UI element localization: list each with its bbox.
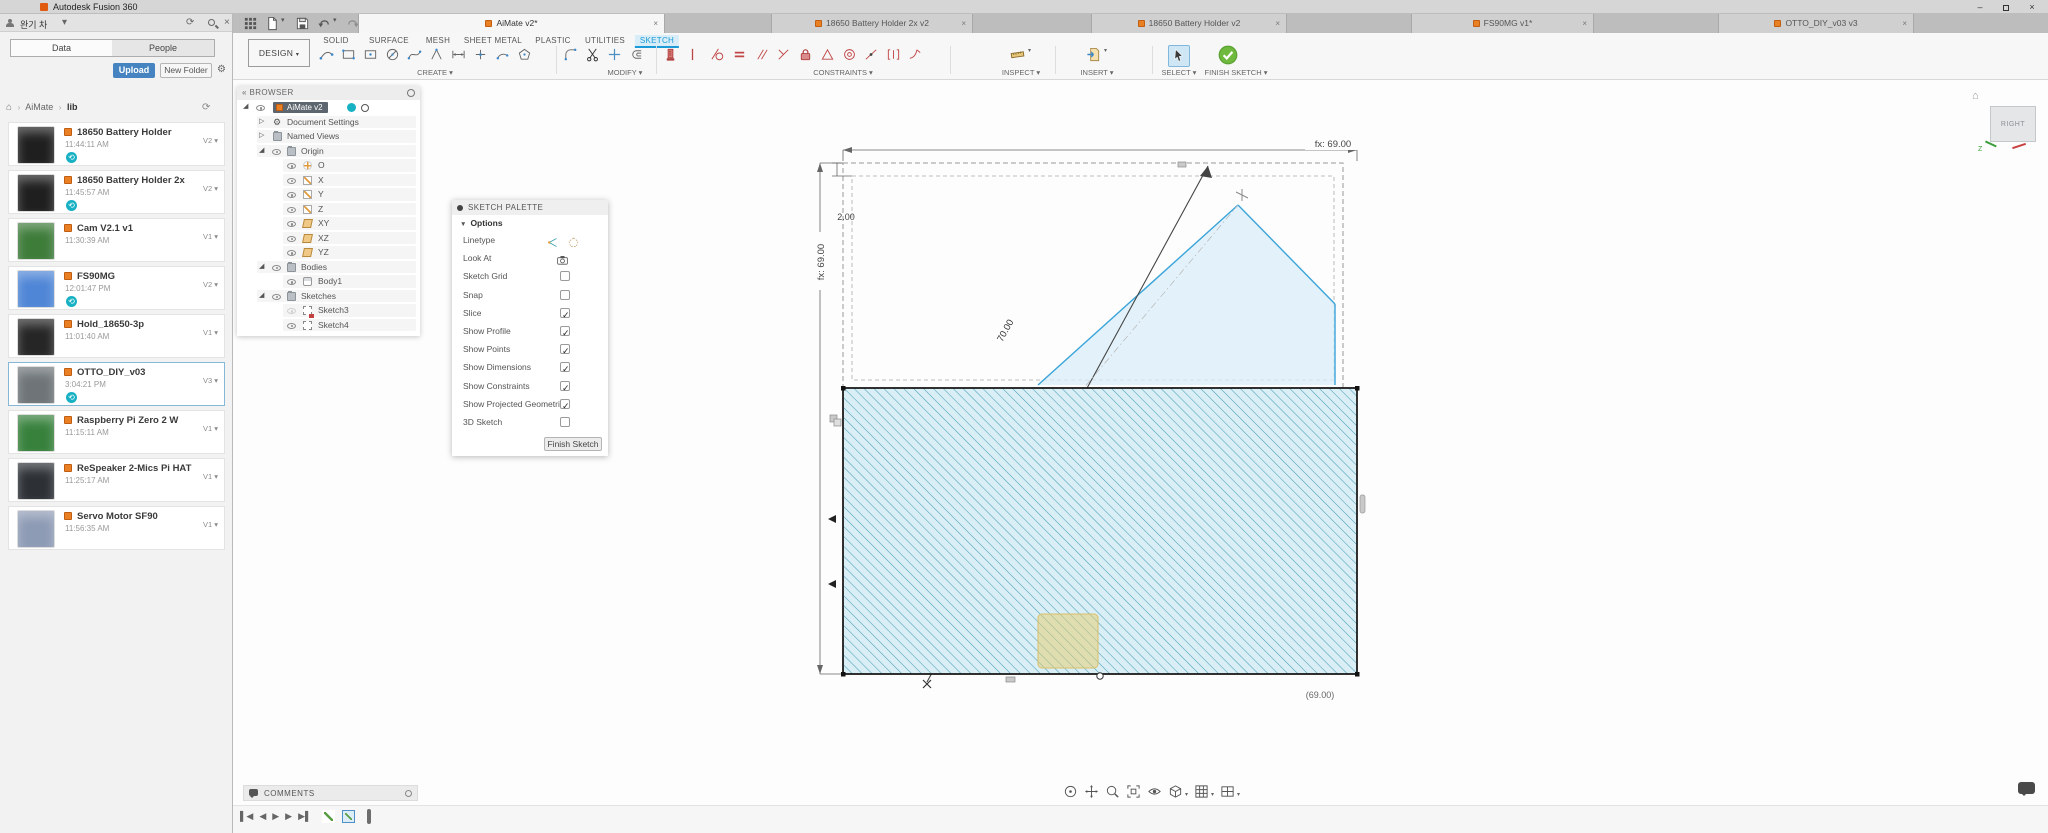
expand-comments-icon[interactable] — [405, 790, 412, 797]
breadcrumb-root[interactable]: AiMate — [25, 102, 53, 112]
close-tab-icon[interactable]: × — [653, 14, 658, 33]
component-cube-icon — [485, 20, 492, 27]
data-item-card[interactable]: OTTO_DIY_v03 3:04:21 PM ⟲ V3 ▾ — [8, 362, 225, 406]
inspect-tool-group: ▾ — [1010, 47, 1031, 62]
dim-arrow — [843, 147, 852, 153]
visibility-eye-icon[interactable] — [287, 178, 296, 184]
option-checkbox[interactable] — [560, 344, 570, 354]
modify-group-label[interactable]: MODIFY ▾ — [608, 68, 643, 77]
item-name: Cam V2.1 v1 — [77, 223, 133, 234]
item-name: 18650 Battery Holder — [77, 127, 172, 138]
item-name: FS90MG — [77, 271, 115, 282]
visibility-eye-icon[interactable] — [287, 207, 296, 213]
trim-scissors-icon[interactable] — [585, 47, 600, 62]
timeline-transport-button[interactable]: ▶ — [272, 811, 279, 822]
palette-options-list: Linetype Look At Sketch Grid Snap Slice — [452, 231, 608, 431]
timeline: ▌◀◀▶▶▶▌ — [240, 808, 500, 828]
close-tab-icon[interactable]: × — [1902, 14, 1907, 33]
palette-option-label: Snap — [463, 290, 483, 300]
palette-option-row[interactable]: Show Constraints — [452, 377, 608, 395]
palette-option-row[interactable]: 3D Sketch — [452, 413, 608, 431]
sketch-point[interactable] — [1355, 672, 1360, 677]
component-cube-icon — [64, 464, 72, 472]
display-settings-icon[interactable] — [1168, 784, 1183, 804]
plane-icon — [302, 219, 313, 228]
tab-people[interactable]: People — [112, 39, 215, 57]
component-cube-icon — [1774, 20, 1781, 27]
hatched-profile[interactable] — [843, 388, 1357, 674]
palette-option-row[interactable]: Slice — [452, 304, 608, 322]
main-toolbar: DESIGN ▾ SOLID SURFACE MESH SHEET METAL … — [233, 33, 2048, 80]
timeline-transport-button[interactable]: ◀ — [259, 811, 266, 822]
palette-option-label: Linetype — [463, 235, 495, 245]
expand-arrow-icon[interactable]: ▷ — [259, 115, 264, 130]
browser-node-plane-xz[interactable]: XZ — [237, 231, 420, 246]
sketch-profile-region[interactable] — [1038, 205, 1335, 385]
cursor-icon — [1171, 48, 1186, 63]
browser-node-named-views[interactable]: ▷ Named Views — [237, 129, 420, 144]
palette-option-row[interactable]: Show Points — [452, 340, 608, 358]
sketch-point[interactable] — [1355, 386, 1360, 391]
option-checkbox[interactable] — [560, 290, 570, 300]
breadcrumb-current: lib — [67, 102, 78, 112]
toolbar-tab[interactable]: PLASTIC — [530, 35, 575, 46]
gear-icon[interactable]: ⚙ — [217, 64, 226, 75]
palette-option-row[interactable]: Show Projected Geometries — [452, 395, 608, 413]
pan-icon[interactable] — [1084, 784, 1099, 804]
bottom-strip — [233, 805, 2048, 833]
select-tool[interactable] — [1168, 45, 1190, 67]
horizontal-constraint-icon[interactable] — [1178, 162, 1186, 167]
finish-sketch-palette-button[interactable]: Finish Sketch — [544, 437, 602, 451]
panel-dot-icon — [457, 205, 463, 211]
palette-option-row[interactable]: Look At — [452, 249, 608, 267]
item-thumbnail — [17, 222, 55, 260]
coincident-marker — [828, 515, 836, 523]
item-version-dropdown[interactable]: V3 ▾ — [203, 376, 218, 385]
toolbar-tab[interactable]: MESH — [421, 35, 455, 46]
measure-icon[interactable] — [1010, 47, 1025, 62]
conic-curve-icon[interactable] — [429, 47, 444, 62]
axis-icon — [303, 205, 312, 214]
maximize-icon — [2003, 5, 2009, 11]
item-thumbnail — [17, 462, 55, 500]
collinear-constraint-icon[interactable] — [886, 47, 901, 62]
palette-option-label: Show Constraints — [463, 381, 530, 391]
visibility-eye-icon[interactable] — [287, 163, 296, 169]
expand-arrow-icon[interactable]: ▷ — [259, 129, 264, 144]
option-checkbox[interactable] — [560, 381, 570, 391]
look-at-icon[interactable] — [556, 254, 569, 267]
data-item-card[interactable]: ReSpeaker 2-Mics Pi HAT 11:25:17 AM ⟲ V1… — [8, 458, 225, 502]
section-collapse-icon: ▼ — [460, 221, 466, 228]
workspace-selector[interactable]: DESIGN ▾ — [248, 39, 310, 67]
folder-icon — [287, 292, 296, 301]
palette-option-row[interactable]: Show Profile — [452, 322, 608, 340]
visibility-eye-icon[interactable] — [287, 192, 296, 198]
arc-icon[interactable] — [495, 47, 510, 62]
dim-arrow — [817, 163, 823, 172]
palette-option-row[interactable]: Sketch Grid — [452, 267, 608, 285]
root-node-chip[interactable]: AiMate v2 — [273, 102, 328, 114]
polygon-icon[interactable] — [517, 47, 532, 62]
concentric-constraint-icon[interactable] — [842, 47, 857, 62]
sketch-point[interactable] — [841, 672, 846, 677]
expand-arrow-icon[interactable]: ◢ — [259, 260, 264, 275]
grid-settings-icon[interactable] — [1194, 784, 1209, 804]
item-thumbnail — [17, 270, 55, 308]
item-thumbnail — [17, 366, 55, 404]
item-thumbnail — [17, 414, 55, 452]
cloud-status-badge: ⟲ — [66, 392, 77, 403]
item-version-dropdown[interactable]: V2 ▾ — [203, 184, 218, 193]
diagonal-arrowhead — [1200, 166, 1212, 178]
visibility-eye-icon[interactable] — [272, 265, 281, 271]
cloud-status-badge: ⟲ — [66, 296, 77, 307]
item-name: Servo Motor SF90 — [77, 511, 158, 522]
orbit-icon[interactable] — [1063, 784, 1078, 804]
browser-node-sketches[interactable]: ◢ Sketches — [237, 289, 420, 304]
chevron-down-icon[interactable]: ▾ — [333, 16, 337, 24]
timeline-transport-button[interactable]: ▶▌ — [298, 811, 311, 822]
option-checkbox[interactable] — [560, 326, 570, 336]
ground-radio-icon[interactable] — [361, 104, 369, 112]
component-cube-icon — [64, 416, 72, 424]
sketch-palette-header[interactable]: SKETCH PALETTE — [452, 200, 608, 215]
spline-icon[interactable] — [407, 47, 422, 62]
browser-node-axis-y[interactable]: Y — [237, 187, 420, 202]
item-time: 11:56:35 AM — [65, 524, 109, 533]
chevron-down-icon[interactable]: ▾ — [281, 16, 285, 24]
palette-option-label: 3D Sketch — [463, 417, 502, 427]
timeline-feature-sketch3[interactable] — [322, 810, 335, 823]
item-time: 11:25:17 AM — [65, 476, 109, 485]
insert-icon[interactable] — [1086, 47, 1101, 62]
data-panel: 완기 차 ▾ ⟳ × Data People Upload New Folder… — [0, 14, 233, 833]
component-cube-icon — [64, 512, 72, 520]
chevron-down-icon: ▾ — [296, 52, 299, 58]
divider — [1055, 46, 1056, 74]
browser-node-sketch4[interactable]: Sketch4 — [237, 318, 420, 333]
visibility-eye-icon[interactable] — [256, 105, 265, 111]
chevron-down-icon[interactable]: ▾ — [1237, 791, 1240, 798]
item-version-dropdown[interactable]: V1 ▾ — [203, 520, 218, 529]
palette-option-label: Slice — [463, 308, 481, 318]
create-group-label[interactable]: CREATE ▾ — [417, 68, 453, 77]
plane-icon — [302, 234, 313, 243]
visibility-eye-icon[interactable] — [272, 149, 281, 155]
user-avatar-icon[interactable] — [6, 19, 14, 27]
item-name: Raspberry Pi Zero 2 W — [77, 415, 178, 426]
palette-option-row[interactable]: Snap — [452, 286, 608, 304]
toolbar-tab[interactable]: SHEET METAL — [459, 35, 527, 46]
toolbar-tab[interactable]: UTILITIES — [580, 35, 630, 46]
palette-option-label: Show Points — [463, 344, 510, 354]
data-item-card[interactable]: 18650 Battery Holder 2x 11:45:57 AM ⟲ V2… — [8, 170, 225, 214]
construction-linetype-icon[interactable] — [567, 236, 580, 249]
item-version-dropdown[interactable]: V2 ▾ — [203, 136, 218, 145]
dimension-left[interactable]: fx: 69.00 — [816, 244, 827, 280]
upload-button[interactable]: Upload — [113, 63, 155, 78]
refresh-icon[interactable]: ⟳ — [186, 17, 194, 28]
option-checkbox[interactable] — [560, 399, 570, 409]
home-icon[interactable]: ⌂ — [6, 102, 12, 113]
extend-icon[interactable] — [607, 47, 622, 62]
constraints-group-label[interactable]: CONSTRAINTS ▾ — [813, 68, 873, 77]
selection-highlight — [1038, 614, 1098, 668]
palette-option-label: Show Projected Geometries — [463, 399, 569, 409]
breadcrumb-sep-icon: › — [59, 103, 62, 112]
close-tab-icon[interactable]: × — [1582, 14, 1587, 33]
document-tab[interactable]: 18650 Battery Holder 2x v2 × — [771, 14, 973, 33]
app-icon — [40, 3, 48, 11]
user-name[interactable]: 완기 차 — [20, 18, 47, 31]
view-cube[interactable]: RIGHT — [1990, 106, 2036, 142]
line-icon[interactable] — [319, 47, 334, 62]
equal-constraint-icon[interactable] — [732, 47, 747, 62]
visibility-eye-icon[interactable] — [287, 221, 296, 227]
item-version-dropdown[interactable]: V2 ▾ — [203, 280, 218, 289]
visibility-eye-icon[interactable] — [272, 294, 281, 300]
visibility-eye-icon[interactable] — [287, 236, 296, 242]
vertical-constraint-icon[interactable] — [1360, 495, 1365, 513]
curvature-constraint-icon[interactable] — [908, 47, 923, 62]
item-version-dropdown[interactable]: V1 ▾ — [203, 472, 218, 481]
collapse-icon[interactable]: « — [242, 88, 247, 97]
visibility-eye-icon[interactable] — [287, 308, 296, 314]
construction-line-icon[interactable] — [685, 47, 700, 62]
offset-icon[interactable] — [629, 47, 644, 62]
data-item-card[interactable]: Raspberry Pi Zero 2 W 11:15:11 AM ⟲ V1 ▾ — [8, 410, 225, 454]
view-navigation-bar: ▾ ▾ ▾ — [1063, 784, 1240, 804]
look-at-icon[interactable] — [1147, 784, 1162, 804]
browser-header[interactable]: « BROWSER — [237, 86, 420, 100]
inspect-group-label[interactable]: INSPECT ▾ — [1002, 68, 1040, 77]
undo-icon[interactable] — [317, 16, 332, 31]
item-version-dropdown[interactable]: V1 ▾ — [203, 424, 218, 433]
data-item-list: 18650 Battery Holder 11:44:11 AM ⟲ V2 ▾ … — [8, 122, 225, 554]
minimize-button[interactable]: – — [1968, 0, 1992, 14]
midpoint-handle[interactable] — [1097, 673, 1103, 679]
document-tab[interactable]: FS90MG v1* × — [1411, 14, 1594, 33]
green-check-icon — [1218, 45, 1238, 65]
close-panel-icon[interactable]: × — [224, 17, 230, 28]
timeline-transport: ▌◀◀▶▶▶▌ — [240, 808, 317, 825]
chevron-down-icon[interactable]: ▾ — [1211, 791, 1214, 798]
browser-node-axis-z[interactable]: Z — [237, 202, 420, 217]
search-icon[interactable] — [208, 19, 215, 26]
point-icon[interactable] — [473, 47, 488, 62]
expand-arrow-icon[interactable]: ◢ — [259, 289, 264, 304]
comment-bubble-icon — [249, 789, 258, 796]
expand-arrow-icon[interactable]: ◢ — [243, 100, 248, 115]
parallel-constraint-icon[interactable] — [754, 47, 769, 62]
browser-node-origin[interactable]: ◢ Origin — [237, 144, 420, 159]
divider — [1152, 46, 1153, 74]
timeline-position-marker[interactable] — [367, 809, 371, 824]
divider — [656, 46, 657, 74]
settings-icon: ⚙ — [273, 115, 281, 130]
fix-lock-icon[interactable] — [798, 47, 813, 62]
select-group-label[interactable]: SELECT ▾ — [1162, 68, 1197, 77]
item-thumbnail — [17, 174, 55, 212]
display-mode-icon[interactable] — [407, 89, 415, 97]
viewcube-home-icon[interactable]: ⌂ — [1972, 90, 1979, 102]
chevron-down-icon: ▾ — [1104, 47, 1107, 62]
viewports-icon[interactable] — [1220, 784, 1235, 804]
sketch-palette: SKETCH PALETTE ▼Options Linetype Look At… — [452, 200, 608, 456]
item-name: OTTO_DIY_v03 — [77, 367, 145, 378]
document-tab[interactable]: OTTO_DIY_v03 v3 × — [1718, 14, 1914, 33]
browser-node-bodies[interactable]: ◢ Bodies — [237, 260, 420, 275]
item-name: Hold_18650-3p — [77, 319, 144, 330]
cloud-status-badge: ⟲ — [66, 200, 77, 211]
item-version-dropdown[interactable]: V1 ▾ — [203, 232, 218, 241]
dimension-bottom[interactable]: (69.00) — [1306, 690, 1335, 700]
perpendicular-constraint-icon[interactable] — [776, 47, 791, 62]
timeline-feature-sketch4[interactable] — [342, 810, 355, 823]
dimension-gap[interactable]: 2.00 — [837, 212, 855, 222]
option-checkbox[interactable] — [560, 417, 570, 427]
component-cube-icon — [64, 272, 72, 280]
finish-sketch-label[interactable]: FINISH SKETCH ▾ — [1205, 68, 1268, 77]
save-icon[interactable] — [295, 16, 310, 31]
sketch-point[interactable] — [841, 386, 846, 391]
browser-node-body1[interactable]: Body1 — [237, 274, 420, 289]
visibility-eye-icon[interactable] — [287, 323, 296, 329]
close-tab-icon[interactable]: × — [961, 14, 966, 33]
data-item-card[interactable]: 18650 Battery Holder 11:44:11 AM ⟲ V2 ▾ — [8, 122, 225, 166]
tab-data[interactable]: Data — [10, 39, 113, 57]
fit-icon[interactable] — [1126, 784, 1141, 804]
dimension-tool-group — [663, 47, 700, 62]
item-name: 18650 Battery Holder 2x — [77, 175, 185, 186]
browser-node-plane-xy[interactable]: XY — [237, 216, 420, 231]
item-thumbnail — [17, 510, 55, 548]
browser-node-axis-x[interactable]: X — [237, 173, 420, 188]
axis-icon — [303, 190, 312, 199]
data-item-card[interactable]: Servo Motor SF90 11:56:35 AM ⟲ V1 ▾ — [8, 506, 225, 550]
insert-group-label[interactable]: INSERT ▾ — [1080, 68, 1113, 77]
comments-label: COMMENTS — [264, 786, 315, 801]
tangent-constraint-icon[interactable] — [710, 47, 725, 62]
toolbar-tab[interactable]: SURFACE — [364, 35, 414, 46]
options-section-header[interactable]: ▼Options — [452, 215, 608, 231]
sketch-dimension-icon[interactable] — [663, 47, 678, 62]
option-checkbox[interactable] — [560, 362, 570, 372]
rectangle-icon[interactable] — [341, 47, 356, 62]
item-version-dropdown[interactable]: V1 ▾ — [203, 328, 218, 337]
help-chat-icon[interactable] — [2018, 782, 2035, 794]
browser-node-document-settings[interactable]: ▷ ⚙ Document Settings — [237, 115, 420, 130]
data-item-card[interactable]: Cam V2.1 v1 11:30:39 AM ⟲ V1 ▾ — [8, 218, 225, 262]
document-tab[interactable]: 18650 Battery Holder v2 × — [1091, 14, 1287, 33]
document-tab-label: FS90MG v1* — [1484, 18, 1533, 28]
circle-icon[interactable] — [385, 47, 400, 62]
data-item-card[interactable]: FS90MG 12:01:47 PM ⟲ V2 ▾ — [8, 266, 225, 310]
component-cube-icon — [276, 104, 283, 111]
close-tab-icon[interactable]: × — [1275, 14, 1280, 33]
document-tab-label: AiMate v2* — [496, 18, 537, 28]
zoom-icon[interactable] — [1105, 784, 1120, 804]
chevron-down-icon: ▾ — [1028, 47, 1031, 62]
sketch-icon — [303, 306, 312, 315]
coincident-marker — [828, 580, 836, 588]
center-rectangle-icon[interactable] — [363, 47, 378, 62]
horizontal-constraint-icon[interactable] — [1006, 677, 1015, 682]
component-cube-icon — [64, 176, 72, 184]
component-cube-icon — [64, 224, 72, 232]
component-cube-icon — [64, 320, 72, 328]
browser-panel: « BROWSER ◢ AiMate v2 ▷ ⚙ Document Setti… — [237, 86, 420, 336]
item-thumbnail — [17, 126, 55, 164]
visibility-eye-icon[interactable] — [287, 279, 296, 285]
projection-constraint-icon[interactable] — [830, 415, 841, 426]
component-cube-icon — [815, 20, 822, 27]
linetype-controls — [546, 236, 580, 249]
browser-node-plane-yz[interactable]: YZ — [237, 245, 420, 260]
dim-arrow — [817, 665, 823, 674]
palette-option-label: Sketch Grid — [463, 271, 507, 281]
sync-icon[interactable]: ⟳ — [202, 102, 210, 113]
chevron-down-icon[interactable]: ▾ — [1185, 791, 1188, 798]
browser-node-sketch3[interactable]: Sketch3 — [237, 303, 420, 318]
folder-icon — [287, 147, 296, 156]
document-tab-label: OTTO_DIY_v03 v3 — [1785, 18, 1857, 28]
fillet-icon[interactable] — [563, 47, 578, 62]
dimension-top[interactable]: fx: 69.00 — [1315, 139, 1351, 150]
item-time: 11:30:39 AM — [65, 236, 109, 245]
sketch-icon — [303, 321, 312, 330]
midpoint-constraint-icon[interactable] — [864, 47, 879, 62]
comments-bar[interactable]: COMMENTS — [243, 785, 418, 801]
centerline-icon[interactable] — [546, 236, 559, 249]
divider — [950, 46, 951, 74]
chevron-down-icon[interactable]: ▾ — [62, 17, 67, 28]
modify-tool-group — [563, 47, 644, 62]
data-item-card[interactable]: Hold_18650-3p 11:01:40 AM ⟲ V1 ▾ — [8, 314, 225, 358]
palette-option-row[interactable]: Linetype — [452, 231, 608, 249]
timeline-transport-button[interactable]: ▶ — [285, 811, 292, 822]
item-name: ReSpeaker 2-Mics Pi HAT — [77, 463, 191, 474]
data-panel-header: 완기 차 ▾ ⟳ × — [0, 14, 232, 32]
constraints-tool-group — [710, 47, 923, 62]
dimension-diagonal[interactable]: 70.00 — [995, 318, 1016, 344]
toolbar-tab[interactable]: SOLID — [318, 35, 354, 46]
new-folder-button[interactable]: New Folder — [160, 63, 212, 78]
expand-arrow-icon[interactable]: ◢ — [259, 144, 264, 159]
symmetry-constraint-icon[interactable] — [820, 47, 835, 62]
file-menu-icon[interactable] — [265, 16, 280, 31]
option-checkbox[interactable] — [560, 308, 570, 318]
timeline-transport-button[interactable]: ▌◀ — [240, 811, 253, 822]
app-grid-icon[interactable] — [243, 16, 258, 31]
palette-option-row[interactable]: Show Dimensions — [452, 358, 608, 376]
finish-sketch-button[interactable] — [1218, 45, 1238, 65]
document-tab[interactable]: AiMate v2* × — [358, 14, 665, 33]
close-window-button[interactable]: × — [2020, 0, 2044, 14]
option-checkbox[interactable] — [560, 271, 570, 281]
item-time: 12:01:47 PM — [65, 284, 110, 293]
document-tab-label: 18650 Battery Holder 2x v2 — [826, 18, 929, 28]
browser-node-root[interactable]: ◢ AiMate v2 — [237, 100, 420, 115]
maximize-button[interactable] — [1994, 0, 2018, 14]
browser-node-origin-point[interactable]: O — [237, 158, 420, 173]
horizontal-dimension-icon[interactable] — [451, 47, 466, 62]
cloud-status-badge — [347, 103, 356, 112]
visibility-eye-icon[interactable] — [287, 250, 296, 256]
item-time: 11:15:11 AM — [65, 428, 109, 437]
